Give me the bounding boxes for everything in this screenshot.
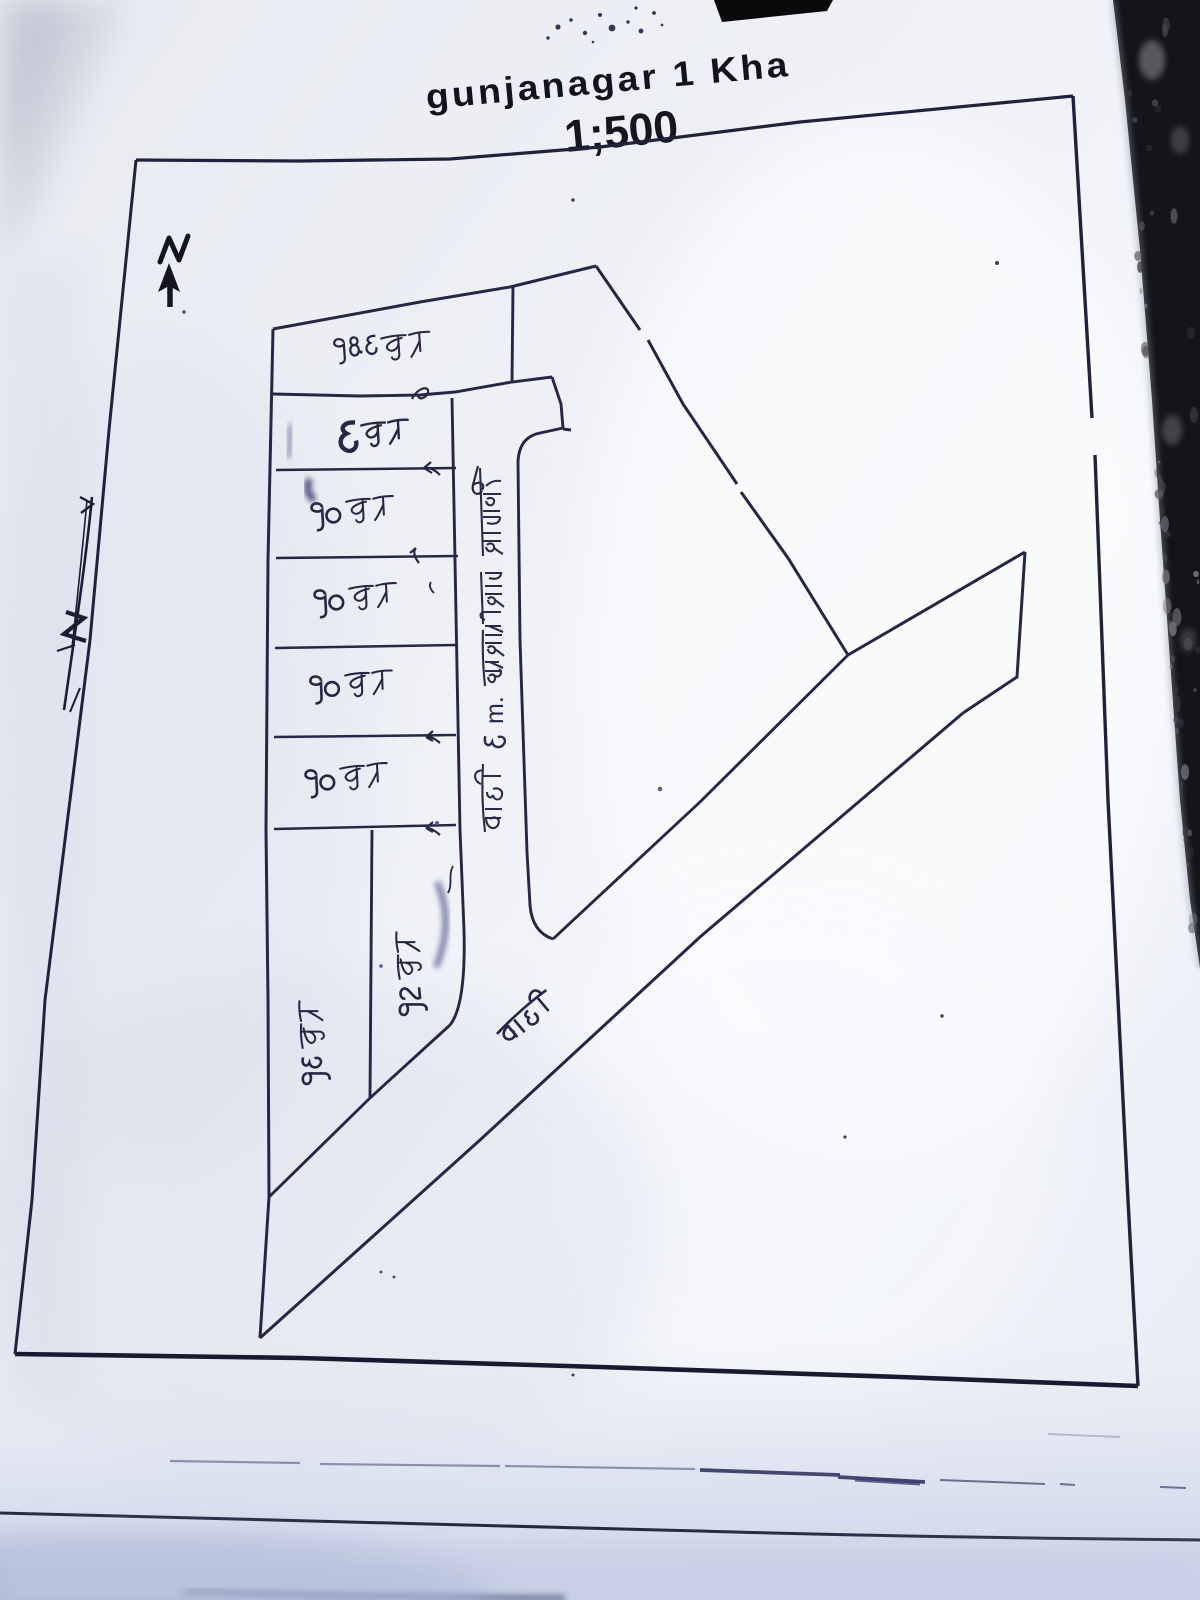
svg-text:m.: m. xyxy=(481,696,509,724)
svg-text:1;500: 1;500 xyxy=(562,100,680,162)
